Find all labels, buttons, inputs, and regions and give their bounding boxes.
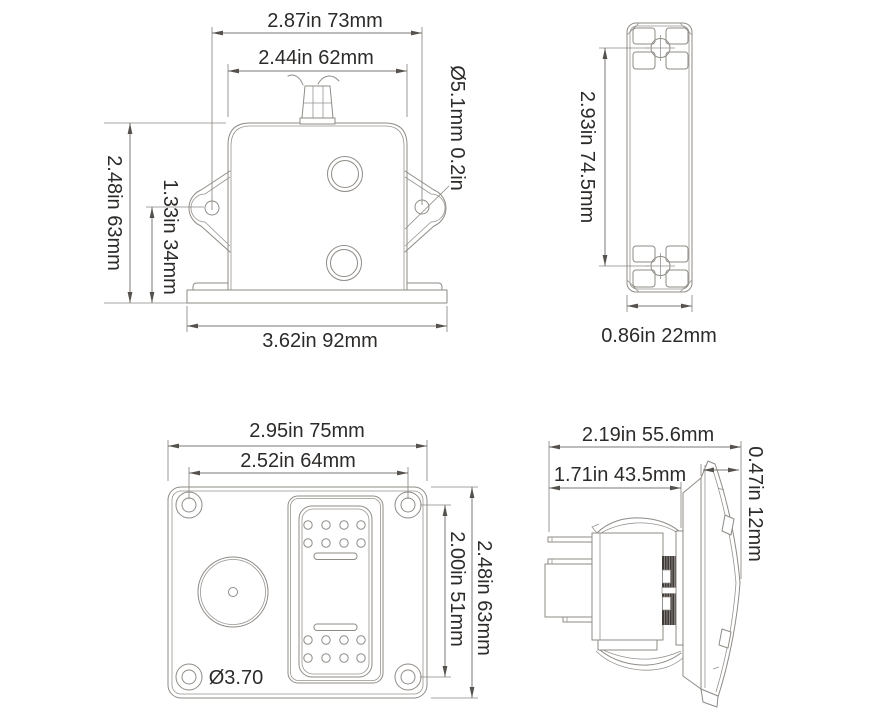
wire-lead-left <box>288 75 303 85</box>
dimension-drawing: 2.87in 73mm 2.44in 62mm 2.48in 63mm 1.33… <box>0 0 870 709</box>
switch-body-step <box>598 640 657 650</box>
dim-label-body-width: 2.44in 62mm <box>258 47 374 69</box>
panel-front-view: 2.95in 75mm 2.52in 64mm 2.00in 51mm 2.48… <box>168 420 495 698</box>
dim-label-bezel-depth: 0.47in 12mm <box>744 446 766 562</box>
dim-label-ear-hole-diameter: Ø5.1mm 0.2in <box>446 65 468 191</box>
side-body-outline <box>627 23 692 292</box>
dim-label-body-depth: 1.71in 43.5mm <box>554 464 686 486</box>
dim-label-base-width: 3.62in 92mm <box>262 330 378 352</box>
technical-drawing-canvas: 2.87in 73mm 2.44in 62mm 2.48in 63mm 1.33… <box>0 0 870 709</box>
bracket-side-view: 2.93in 74.5mm 0.86in 22mm <box>576 23 717 347</box>
spring-levers-top <box>592 518 679 534</box>
switch-side-view: 2.19in 55.6mm 1.71in 43.5mm 0.47in 12mm <box>545 424 766 707</box>
dim-label-total-depth: 2.19in 55.6mm <box>582 424 714 446</box>
grommet-body <box>302 86 333 118</box>
switch-body <box>592 533 663 640</box>
spring-levers-bottom <box>596 650 683 670</box>
panel-outline <box>168 487 427 698</box>
dim-label-side-height: 2.93in 74.5mm <box>576 91 598 223</box>
housing-outline <box>228 123 407 290</box>
dim-label-ear-hole-spacing: 2.87in 73mm <box>267 10 383 32</box>
mounting-ear-left <box>189 171 230 252</box>
wire-lead-right <box>318 76 339 84</box>
dim-label-panel-width: 2.95in 75mm <box>249 420 365 442</box>
dim-label-panel-height: 2.48in 63mm <box>473 540 495 656</box>
hole-dia-leader <box>405 186 449 229</box>
bracket-front-view: 2.87in 73mm 2.44in 62mm 2.48in 63mm 1.33… <box>103 10 468 352</box>
switch-front-flange <box>676 531 683 645</box>
dim-label-side-width: 0.86in 22mm <box>601 325 717 347</box>
mounting-ear-right <box>405 171 446 252</box>
grommet-flange <box>300 118 335 124</box>
dim-label-overall-height: 2.48in 63mm <box>103 155 125 271</box>
dim-label-panel-screw-dia: Ø3.70 <box>209 667 263 689</box>
panel-bezel-profile <box>701 461 740 707</box>
dim-label-hole-to-base: 1.33in 34mm <box>159 179 181 295</box>
dim-label-panel-screw-width: 2.52in 64mm <box>240 450 356 472</box>
dim-label-panel-screw-height: 2.00in 51mm <box>446 531 468 647</box>
mounting-plate <box>683 478 701 689</box>
switch-base-block <box>545 564 598 617</box>
cable-grommet <box>288 75 339 124</box>
